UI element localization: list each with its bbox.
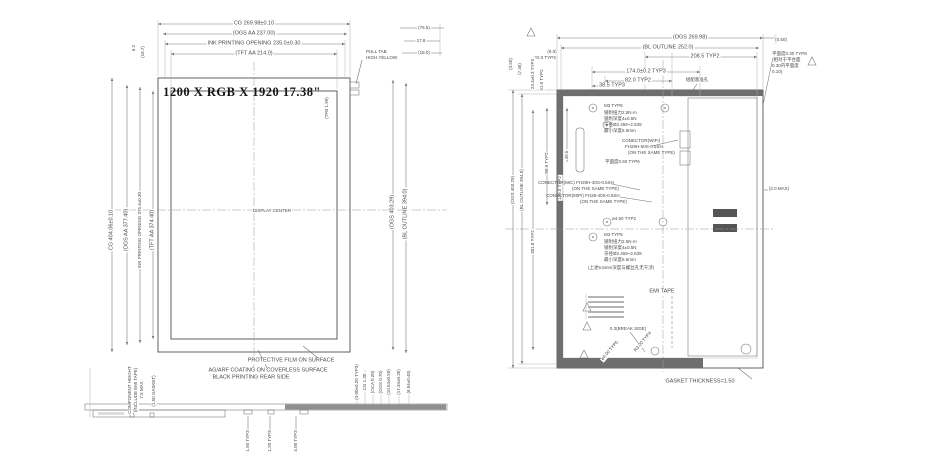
datum-hole-note: 组配基准孔 — [685, 78, 710, 83]
profile-dim-2: 1.20 TYP3 — [268, 429, 273, 452]
rv-dim-050: (0.50) — [774, 38, 788, 43]
rv-dim-bl-outline-width: (BL OUTLINE 252.0) — [642, 45, 695, 51]
connector-wifi-line1: CONECTOR(WIFI) — [622, 139, 660, 144]
screw-note2-line5: 最小深度6.5mm — [604, 258, 636, 263]
gasket-thickness-note: GASKET THICKNESS=1.50 — [664, 379, 735, 385]
gasket-dim-note: (1.50 GASKET) — [152, 374, 157, 407]
connector-wifi-line3: (ON THE SAME TYPE) — [628, 151, 675, 156]
screw-note1-line5: 最小深度6.5mm — [604, 129, 636, 134]
rv-dim-350: (3.50) — [509, 57, 514, 71]
dim-cg-width: CG 269.98±0.10 — [233, 21, 275, 27]
screw-note1-line4: 牙径Ø2.459~2.639 — [604, 123, 642, 128]
component-height-note-line3: 7.5 MAX — [140, 380, 145, 399]
left-view-panel — [112, 62, 447, 368]
rv-dim-746: (7.46) — [518, 62, 523, 76]
profile-dim-3: 4.00 TYP3 — [294, 429, 299, 452]
rv-dim-22: 22.0 TYP3 — [533, 56, 556, 61]
dim-right-offset-1: (76.5) — [417, 26, 431, 31]
rv-dim-80: 80.9 TYP2 — [545, 151, 550, 174]
dim-tft-aa-width: (TFT AA 214.0) — [234, 51, 273, 57]
connector-mipi-line1: CONECTOR(MIPI) FH28-40S-0.5SH — [546, 194, 620, 199]
protective-film-note: PROTECTIVE FILM ON SURFACE — [247, 358, 335, 364]
dim-ogs-aa-width: (OGS AA 237.00) — [232, 31, 277, 37]
pull-tab-note-line1: PULL TAB — [366, 50, 387, 55]
connector-mic-line2: (ON THE SAME TYPE) — [572, 187, 619, 192]
rv-dim-bl-outline-height: (BL OUTLINE 394.0) — [520, 168, 525, 212]
screw-note2-line3: 锁附深度4±0.5N — [604, 246, 636, 251]
dim-right-offset-3: (18.0) — [417, 51, 431, 56]
component-height-note-line2: (INCLUDE EMI TAPE) — [134, 367, 139, 414]
flatness-inner-note: 平面度0.50 TYP6 — [605, 160, 640, 165]
rv-dim-38: 38.5 TYP3 — [598, 83, 626, 89]
connector-mic-line1: CONECTOR(MIC) FH28H-30S-0.5SH — [538, 181, 614, 186]
screw-note2-line2: 锁附扭力2.5N·m — [604, 240, 637, 245]
dim-ogs-height-right: (OGS 403.29) — [390, 194, 396, 230]
stackup-dim-4: (OGS 0.70) — [379, 369, 384, 394]
stackup-dim-3: (OCA 0.20) — [371, 370, 376, 395]
dim-ink-opening-width: INK PRINTING OPENING 235.0±0.30 — [207, 41, 302, 47]
rv-dim-41: 41.0 TYP2 — [540, 68, 545, 91]
hole-diameter-dim: ø4.50 TYP2 — [611, 217, 637, 222]
stackup-dim-5: (10.54±0.50) — [387, 368, 392, 396]
dim-ink-opening-height: INK PRINTING OPENING 375.4±0.30 — [138, 191, 143, 269]
display-center-label: DISPLAY CENTER — [252, 209, 292, 214]
screw-note1-line2: 锁附扭力2.5N·m — [604, 111, 637, 116]
flatness-note-line2: (相对于平台面 — [772, 58, 801, 63]
rv-dim-82: 82.0 TYP2 — [624, 78, 652, 84]
edge-note: (TFB 1.99) — [325, 96, 330, 120]
connector-wifi-line2: FH28H-50S-0.5SH — [625, 145, 663, 150]
flatness-note-line4: 0.10) — [772, 70, 782, 75]
screw-note2-line4: 牙径Ø2.459~2.639 — [604, 252, 642, 257]
rv-dim-ogs-height: (OGS 403.29) — [511, 175, 516, 205]
max-thickness-note: (2.0 MAX) — [768, 187, 790, 192]
coating-note-line1: AG/ARF COATING ON COVERLESS SURFACE — [207, 368, 328, 374]
dim-ogs-aa-height: (OGS AA 377.40) — [124, 208, 130, 253]
rv-dim-174: 174.0±0.2 TYP3 — [625, 69, 667, 75]
right-view-panel — [505, 28, 816, 372]
pull-tab-note-line2: HIGH YELLOW — [366, 56, 397, 61]
rv-dim-9: (9.0) — [546, 50, 557, 55]
emi-tape-label: EMI TAPE — [648, 289, 675, 295]
rv-dim-49: 49.5 — [565, 150, 570, 161]
dim-right-offset-2: 17.8 — [416, 39, 427, 44]
coating-note-line2: BLACK PRINTING REAR SIDE — [211, 375, 290, 381]
rv-dim-23: 23.4±0.3 TYP3 — [531, 58, 536, 90]
rv-dim-208: 208.5 TYP2 — [690, 54, 721, 60]
drawing-sheet: 1200 X RGB X 1920 17.38" DISPLAY CENTER … — [0, 0, 930, 459]
flatness-note-line3: 0.30内平面度 — [772, 64, 799, 69]
rv-dim-ogs-width: (OGS 269.98) — [672, 35, 708, 41]
stackup-dim-7: (6.94±0.40) — [407, 370, 412, 395]
profile-dim-1: 1.50 TYP3 — [246, 429, 251, 452]
dim-left-offset-2: (18.7) — [141, 45, 146, 59]
screw-note1-line1: M3 TYP8 — [604, 104, 623, 109]
stackup-dim-6: (17.34±0.35) — [397, 368, 402, 396]
dim-tft-aa-height: (TFT AA 374.40) — [150, 209, 156, 251]
component-height-note-line1: COMPONENT HEIGHT — [128, 365, 133, 414]
screw-note2-line6: (上述6.5mm深度与螺丝孔无干涉) — [588, 266, 654, 271]
connector-mipi-line2: (ON THE SAME TYPE) — [580, 200, 627, 205]
dim-cg-height: CG 404.06±0.10 — [109, 209, 115, 251]
screw-note1-line3: 锁附深度4±0.5N — [604, 117, 636, 122]
break-side-note: 0.3(BREAK SIDE) — [609, 327, 647, 332]
dim-bl-outline-height: (BL OUTLINE 394.0) — [403, 188, 409, 241]
rv-dim-381: 381.8 TYP2 — [531, 229, 536, 255]
panel-resolution-title: 1200 X RGB X 1920 17.38" — [162, 86, 322, 99]
screw-note2-line1: M3 TYP6 — [604, 233, 623, 238]
flatness-note-line1: 平面度0.30 TYP8 — [772, 52, 807, 57]
stackup-dim-1: (3.00±0.20 TYP3) — [355, 363, 360, 400]
stackup-dim-2: CG 1.30 — [363, 373, 368, 392]
dim-left-offset-1: 6.2 — [132, 44, 137, 52]
